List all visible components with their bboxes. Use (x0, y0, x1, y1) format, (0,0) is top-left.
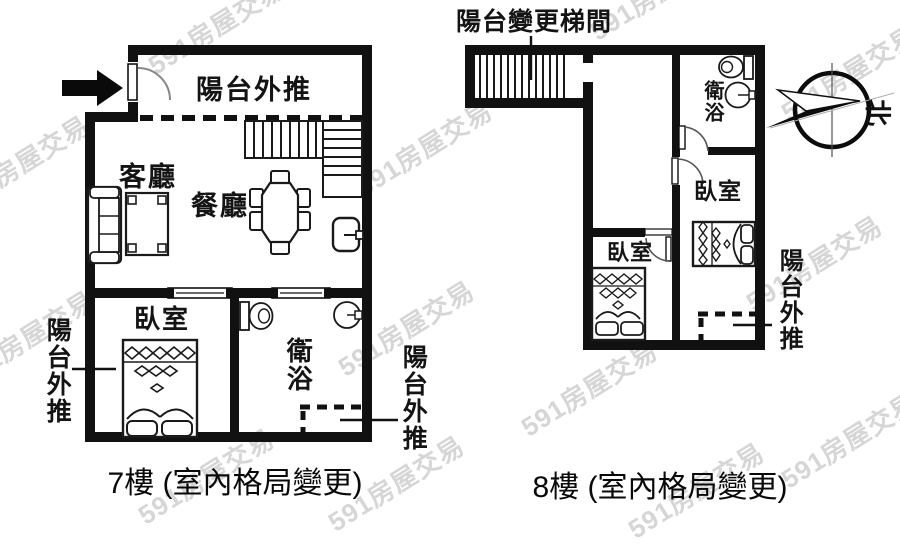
caption-8f: 8樓 (室內格局變更) (530, 462, 790, 506)
coffee-table-icon (126, 193, 168, 255)
bed-icon-7f (123, 340, 197, 437)
balcony-dashed-8f (698, 314, 765, 341)
stair-wall-opening-8f (582, 59, 594, 86)
sink-icon-8f (726, 83, 756, 108)
entrance-door-icon (127, 62, 170, 102)
floorplan-image: 591房屋交易 591房屋交易 591房屋交易 591房屋交易 591房屋交易 … (0, 0, 900, 504)
caption-7f: 7樓 (室內格局變更) (85, 458, 385, 502)
sofa-icon (88, 187, 121, 263)
label-balcony-top-7f: 陽台外推 (196, 76, 312, 104)
label-bathroom-7f: 衛浴 (284, 337, 311, 393)
label-bedroom-right-8f: 臥室 (694, 179, 742, 203)
stairs-8f (480, 55, 564, 98)
stairs-7f (245, 121, 362, 197)
label-balcony-right-7f: 陽台外推 (400, 344, 426, 452)
floorplan-drawing (0, 0, 900, 504)
bed-icon-8f-left (592, 268, 645, 340)
tv-cabinet-icon (333, 218, 363, 251)
toilet-icon-7f (240, 302, 273, 330)
label-living-room-7f: 客廳 (119, 163, 177, 191)
label-stairwell-8f: 陽台變更梯間 (456, 9, 612, 35)
north-label: 北 (860, 99, 899, 126)
label-bathroom-8f: 衛浴 (701, 80, 722, 124)
label-bedroom-7f: 臥室 (134, 306, 190, 333)
label-balcony-right-8f: 陽台外推 (776, 248, 801, 352)
dining-table-icon (250, 171, 310, 254)
label-bedroom-left-8f: 臥室 (607, 241, 653, 264)
sink-icon-7f (334, 302, 362, 328)
label-balcony-left-7f: 陽台外推 (44, 317, 70, 425)
bed-icon-8f-right (693, 222, 755, 266)
entrance-arrow-icon (62, 70, 123, 106)
label-dining-room-7f: 餐廳 (191, 192, 249, 220)
toilet-icon-8f (719, 56, 753, 79)
